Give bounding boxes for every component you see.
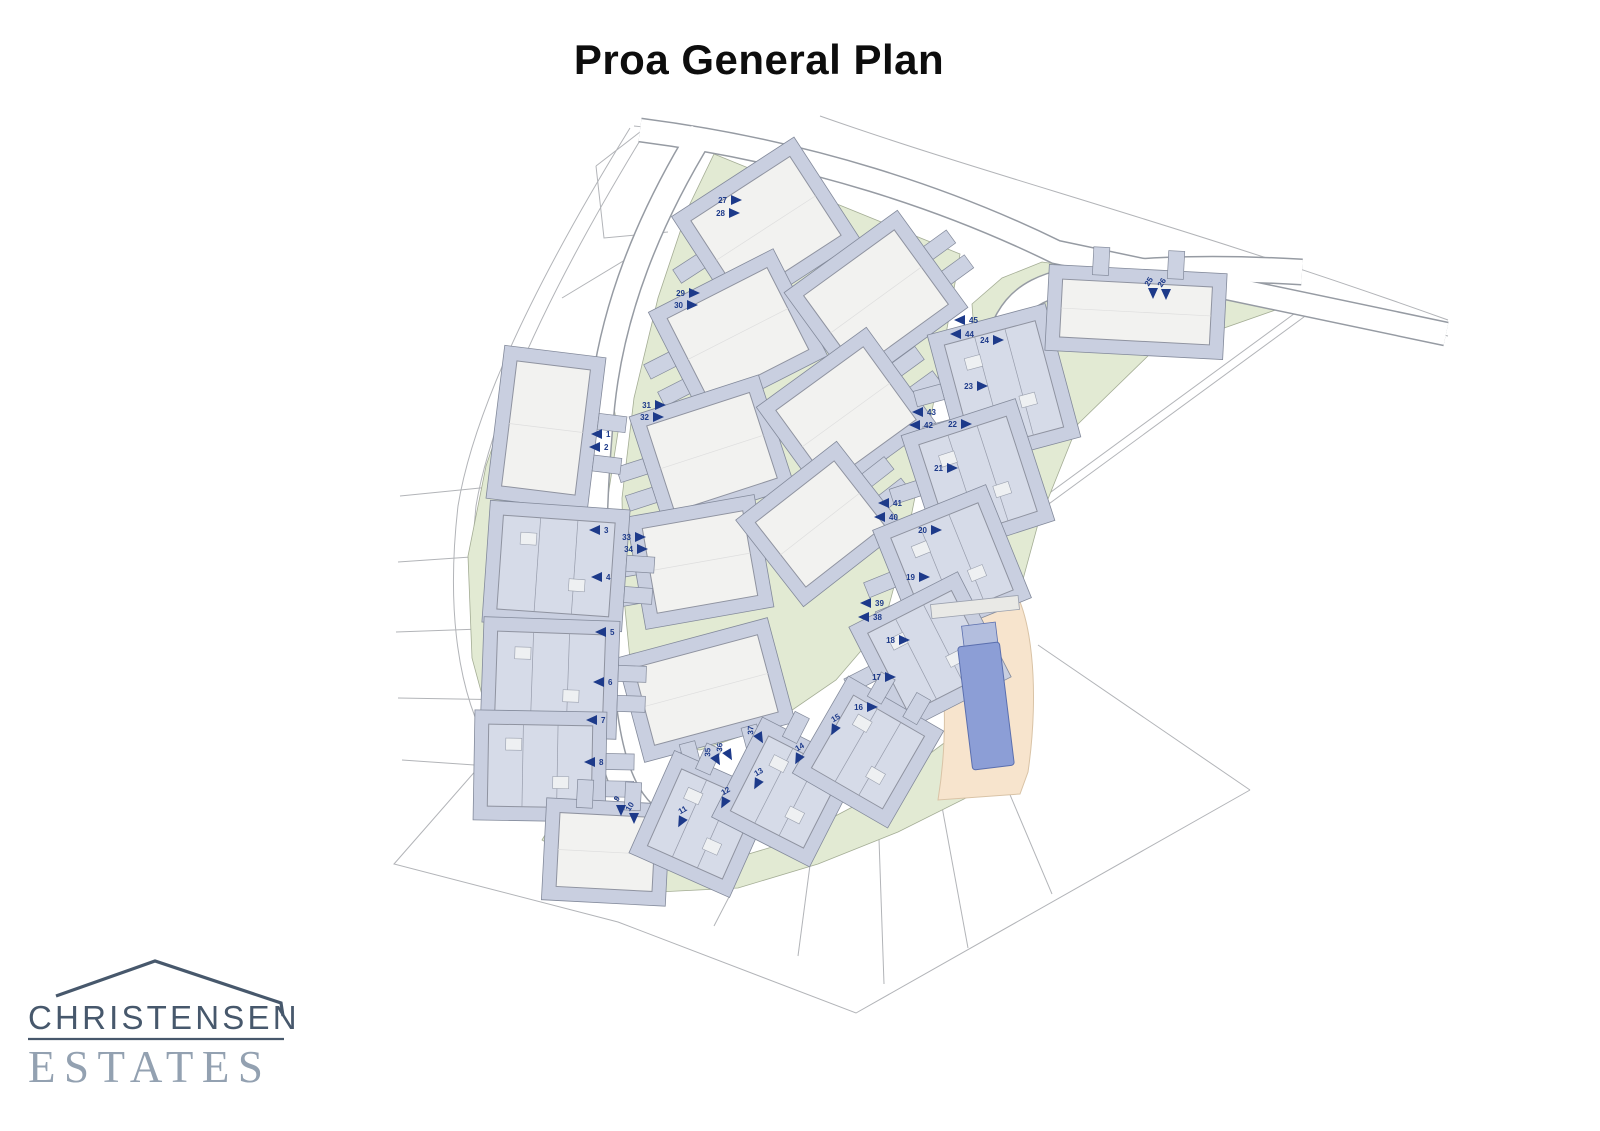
arrow-number: 42 [924, 421, 933, 430]
unit-arrow-45[interactable]: 45 [954, 315, 978, 325]
arrow-number: 35 [703, 747, 712, 757]
garage-pad [618, 665, 647, 682]
boundary-line [1038, 645, 1250, 790]
arrow-number: 32 [640, 413, 649, 422]
arrow-number: 38 [873, 613, 882, 622]
brand-logo-graphic: CHRISTENSEN ESTATES [26, 938, 306, 1098]
boundary-line [596, 132, 640, 166]
arrow-number: 29 [676, 289, 685, 298]
arrow-number: 33 [622, 533, 631, 542]
garage-pad [626, 555, 655, 573]
arrow-number: 3 [604, 526, 609, 535]
garage-pad [576, 779, 593, 808]
arrow-number: 36 [715, 742, 724, 752]
garage-pad [1167, 251, 1184, 280]
arrow-number: 4 [606, 573, 611, 582]
skylight [568, 579, 585, 592]
arrow-number: 7 [601, 716, 606, 725]
arrow-number: 16 [854, 703, 863, 712]
arrow-number: 27 [718, 196, 727, 205]
brand-name-text: CHRISTENSEN [28, 999, 300, 1036]
arrow-number: 8 [599, 758, 604, 767]
arrow-number: 22 [948, 420, 957, 429]
arrow-number: 41 [893, 499, 902, 508]
garage-pad [606, 753, 634, 769]
arrow-number: 17 [872, 673, 881, 682]
arrow-number: 20 [918, 526, 927, 535]
arrow-number: 18 [886, 636, 895, 645]
arrow-number: 28 [716, 209, 725, 218]
skylight [506, 738, 522, 750]
brand-logo: CHRISTENSEN ESTATES [26, 938, 306, 1098]
skylight [553, 776, 569, 788]
skylight [563, 690, 579, 703]
garage-pad [1092, 247, 1109, 276]
arrow-number: 45 [969, 316, 978, 325]
arrow-icon [722, 748, 736, 763]
arrow-number: 31 [642, 401, 651, 410]
arrow-number: 43 [927, 408, 936, 417]
arrow-number: 44 [965, 330, 974, 339]
arrow-number: 40 [889, 513, 898, 522]
arrow-number: 30 [674, 301, 683, 310]
garage-pad [592, 455, 622, 474]
arrow-number: 2 [604, 443, 609, 452]
arrow-number: 5 [610, 628, 615, 637]
skylight [515, 647, 531, 660]
arrow-number: 21 [934, 464, 943, 473]
arrow-number: 34 [624, 545, 633, 554]
arrow-number: 23 [964, 382, 973, 391]
arrow-number: 37 [746, 725, 755, 735]
arrow-number: 39 [875, 599, 884, 608]
arrow-number: 19 [906, 573, 915, 582]
garage-pad [617, 695, 646, 712]
brand-subtitle-text: ESTATES [28, 1042, 271, 1092]
skylight [520, 532, 537, 545]
arrow-number: 24 [980, 336, 989, 345]
arrow-number: 6 [608, 678, 613, 687]
garage-pad [624, 587, 653, 605]
arrow-number: 1 [606, 430, 611, 439]
